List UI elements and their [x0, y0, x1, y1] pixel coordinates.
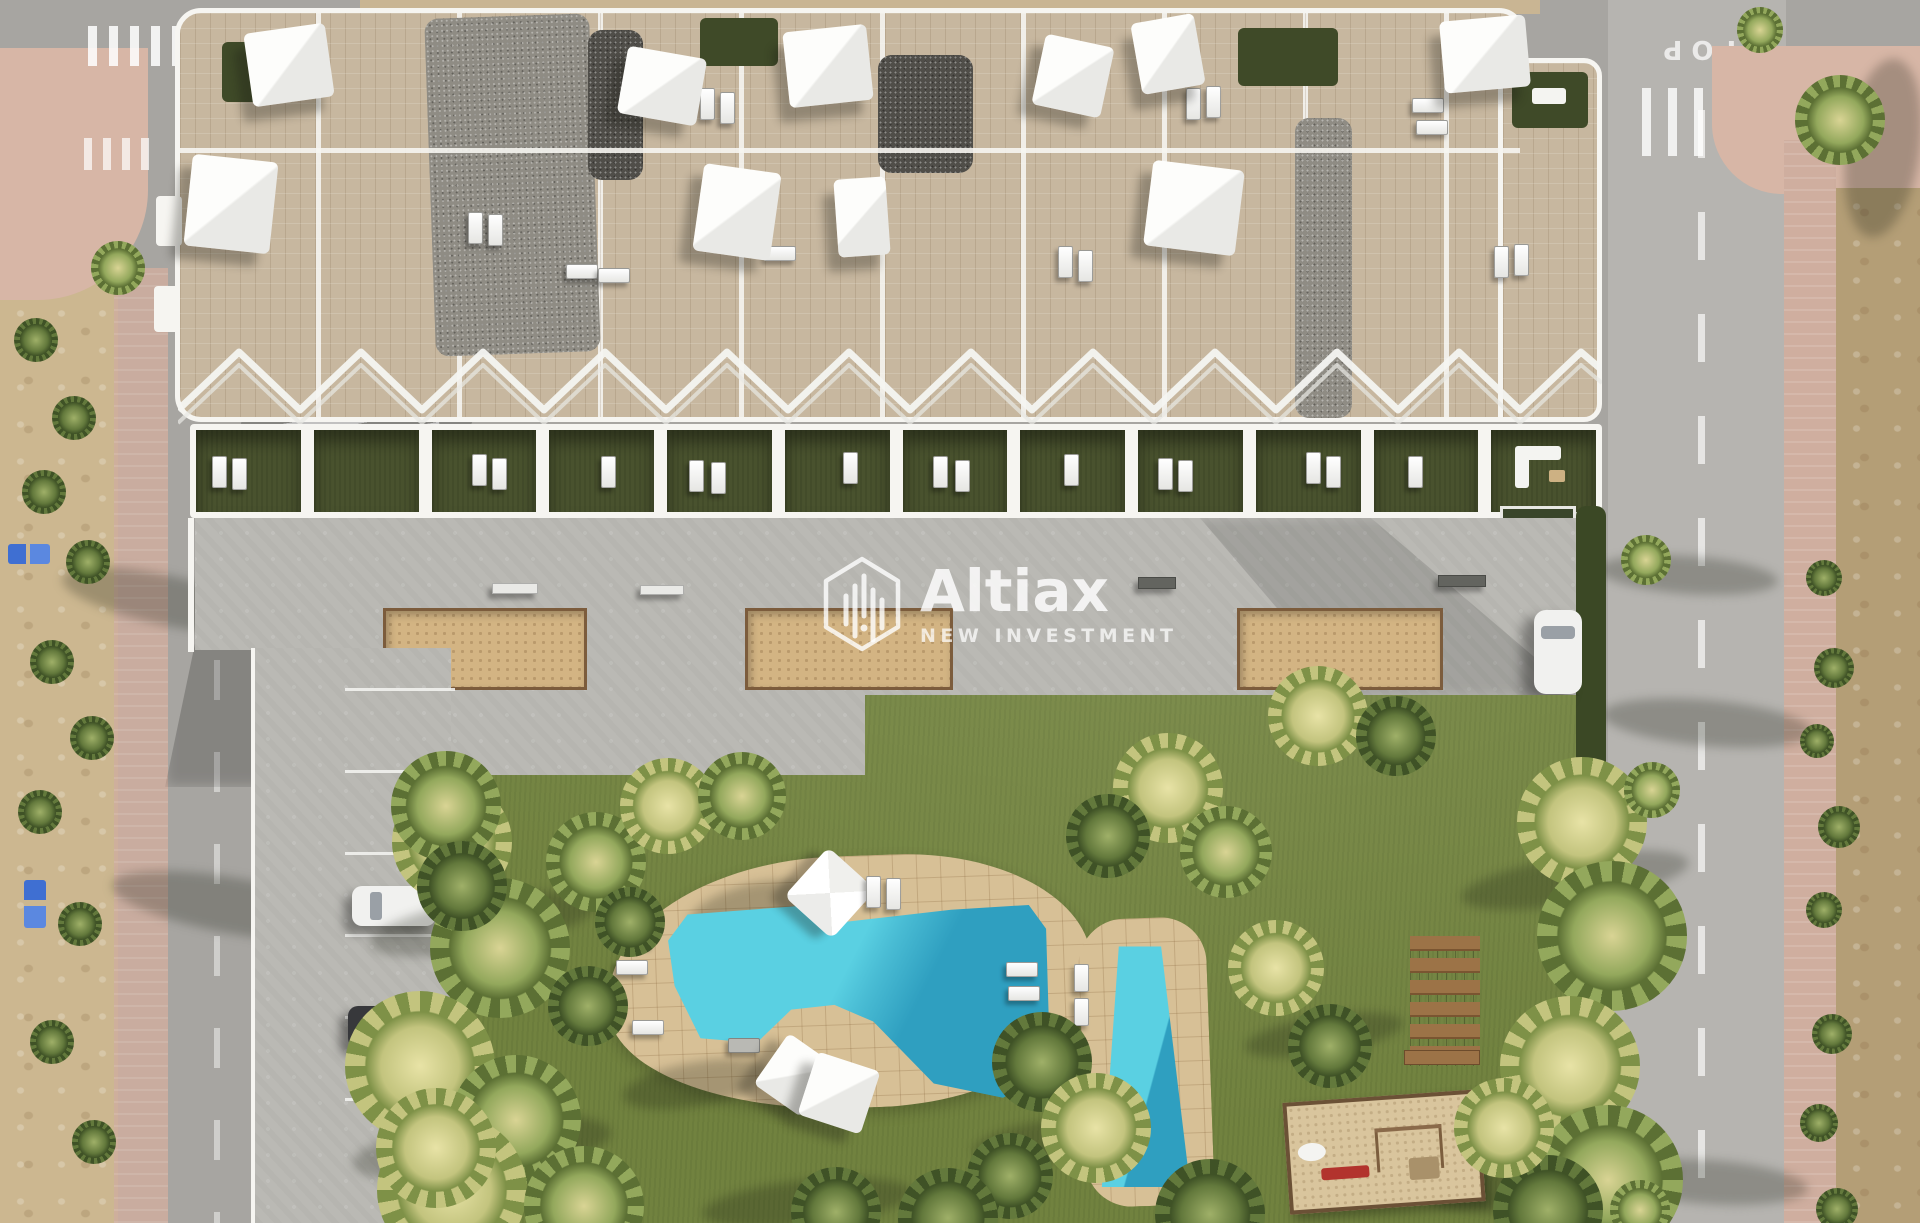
sun-lounger	[1186, 88, 1201, 120]
weed-shrub	[14, 318, 58, 362]
weed-shrub	[70, 716, 114, 760]
sun-lounger	[933, 456, 948, 488]
sun-lounger	[488, 214, 503, 246]
weed-shrub	[72, 1120, 116, 1164]
sun-lounger	[1514, 244, 1529, 276]
weed-shrub	[66, 540, 110, 584]
sun-lounger	[598, 268, 630, 283]
shade-sail	[617, 46, 708, 127]
weed-shrub	[30, 1020, 74, 1064]
garden-sofa	[1515, 446, 1529, 488]
sun-lounger	[566, 264, 598, 279]
waste-bins	[24, 880, 46, 928]
bush	[417, 841, 507, 931]
lot-shrub	[1818, 806, 1860, 848]
lot-shrub	[1812, 1014, 1852, 1054]
sun-lounger	[689, 460, 704, 492]
sun-lounger	[1008, 986, 1040, 1001]
shade-sail	[183, 154, 278, 254]
lot-shrub	[1806, 892, 1842, 928]
crosswalk	[84, 138, 160, 170]
sun-lounger	[955, 460, 970, 492]
palm-tree	[1180, 806, 1272, 898]
lot-shrub	[1800, 1104, 1838, 1142]
sun-lounger	[1074, 964, 1089, 992]
weed-shrub	[18, 790, 62, 834]
sun-lounger	[601, 456, 616, 488]
watermark-tagline: NEW INVESTMENT	[920, 625, 1178, 647]
rooftop-garden	[700, 18, 778, 66]
sun-lounger	[1412, 98, 1444, 113]
sun-lounger	[1158, 458, 1173, 490]
sun-lounger	[1178, 460, 1193, 492]
sun-lounger	[843, 452, 858, 484]
palm-tree	[1041, 1073, 1151, 1183]
street-tree	[1621, 535, 1671, 585]
weed-shrub	[58, 902, 102, 946]
garden-plot	[1020, 430, 1125, 512]
palm-tree	[1268, 666, 1368, 766]
bench	[492, 583, 538, 594]
garden-plot	[196, 430, 301, 512]
private-gardens-band	[190, 424, 1602, 518]
sun-lounger	[866, 876, 881, 908]
roof-parapet-line	[180, 148, 1520, 153]
shade-sail	[782, 24, 873, 108]
garden-plot	[785, 430, 890, 512]
rooftop-sofa	[1532, 88, 1566, 104]
garden-plot-with-sofa	[1491, 430, 1596, 512]
bench	[1438, 575, 1486, 587]
bush	[595, 887, 665, 957]
garden-plot	[432, 430, 537, 512]
west-balcony	[156, 196, 182, 246]
lot-shrub	[1816, 1188, 1858, 1223]
sun-lounger	[728, 1038, 760, 1053]
watermark-text: Altiax NEW INVESTMENT	[920, 562, 1178, 647]
shade-sail	[833, 176, 890, 257]
seesaw	[1297, 1142, 1326, 1162]
bush	[1356, 696, 1436, 776]
wooden-step-path	[1410, 936, 1480, 1066]
bush	[1288, 1004, 1372, 1088]
garden-plot	[1256, 430, 1361, 512]
sun-lounger	[632, 1020, 664, 1035]
swing-frame-post	[1438, 1124, 1444, 1168]
garden-plot	[314, 430, 419, 512]
wooden-plank-bench	[1404, 1050, 1480, 1065]
play-box	[1408, 1156, 1439, 1180]
sun-lounger	[1064, 454, 1079, 486]
plaza-palm	[1795, 75, 1885, 165]
garden-plot	[667, 430, 772, 512]
shade-sail	[1439, 14, 1531, 93]
sun-lounger	[1306, 452, 1321, 484]
playground	[1282, 1089, 1485, 1214]
sun-lounger	[720, 92, 735, 124]
garden-plot	[1374, 430, 1479, 512]
watermark: Altiax NEW INVESTMENT	[822, 556, 1178, 652]
shade-sail	[1143, 160, 1245, 257]
sun-lounger	[711, 462, 726, 494]
sun-lounger	[472, 454, 487, 486]
sun-lounger	[1416, 120, 1448, 135]
bush	[1066, 794, 1150, 878]
garden-plot	[549, 430, 654, 512]
waste-bins	[8, 544, 50, 564]
weed-shrub	[30, 640, 74, 684]
shade-sail	[692, 163, 781, 261]
garden-plot	[903, 430, 1008, 512]
palm-tree	[1454, 1078, 1554, 1178]
street-tree	[1624, 762, 1680, 818]
lot-shrub	[1814, 648, 1854, 688]
weed-shrub	[52, 396, 96, 440]
crosswalk	[88, 26, 178, 66]
shade-sail	[243, 23, 335, 108]
weed-shrub	[22, 470, 66, 514]
west-balcony	[154, 286, 180, 332]
zigzag-pergola	[178, 330, 1602, 434]
car-windshield	[1541, 626, 1575, 639]
gravel-roof-section	[424, 13, 601, 357]
rooftop-garden	[1238, 28, 1338, 86]
palm-tree	[1537, 861, 1687, 1011]
shade-sail	[1130, 13, 1206, 95]
palm-tree	[376, 1088, 496, 1208]
hexagon-bars-logo-icon	[822, 556, 902, 652]
sun-lounger	[1494, 246, 1509, 278]
terrace-west-wall	[188, 518, 194, 652]
shade-sail	[1031, 34, 1114, 119]
street-tree	[1737, 7, 1783, 53]
palm-tree	[1228, 920, 1324, 1016]
sun-lounger	[1206, 86, 1221, 118]
aerial-render-scene: STOP	[0, 0, 1920, 1223]
swing-frame-bar	[1374, 1124, 1441, 1133]
car-windshield	[370, 892, 382, 920]
sun-lounger	[1074, 998, 1089, 1026]
sun-lounger	[468, 212, 483, 244]
sun-lounger	[700, 88, 715, 120]
sun-lounger	[212, 456, 227, 488]
garden-plot	[1138, 430, 1243, 512]
red-bench	[1321, 1165, 1370, 1180]
street-tree	[91, 241, 145, 295]
sun-lounger	[492, 458, 507, 490]
bush	[548, 966, 628, 1046]
sun-lounger	[1006, 962, 1038, 977]
swing-frame-post	[1374, 1128, 1380, 1172]
sun-lounger	[1078, 250, 1093, 282]
lot-shrub	[1800, 724, 1834, 758]
west-sidewalk	[114, 268, 168, 1223]
east-street-center-line	[1698, 110, 1705, 1223]
bench	[640, 585, 684, 595]
sun-lounger	[1408, 456, 1423, 488]
palm-tree	[698, 752, 786, 840]
sun-lounger	[886, 878, 901, 910]
empty-dirt-lot	[1836, 188, 1920, 1223]
sun-lounger	[616, 960, 648, 975]
sun-lounger	[232, 458, 247, 490]
garden-table	[1549, 470, 1565, 482]
parked-car-white	[1534, 610, 1582, 694]
sun-lounger	[1058, 246, 1073, 278]
gravel-roof-section	[878, 55, 973, 173]
watermark-brand: Altiax	[920, 562, 1178, 620]
sun-lounger	[1326, 456, 1341, 488]
lot-shrub	[1806, 560, 1842, 596]
